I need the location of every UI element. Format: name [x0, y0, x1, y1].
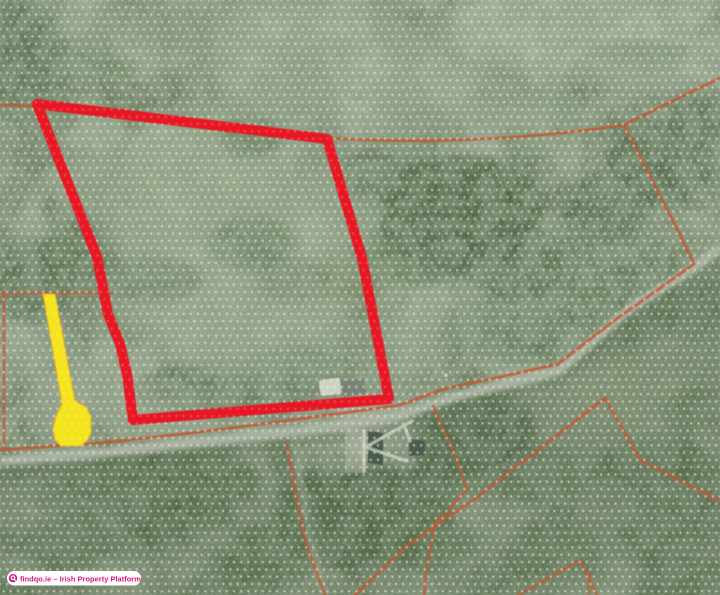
svg-text:findqo.ie – Irish Property Pla: findqo.ie – Irish Property Platform [20, 574, 141, 583]
